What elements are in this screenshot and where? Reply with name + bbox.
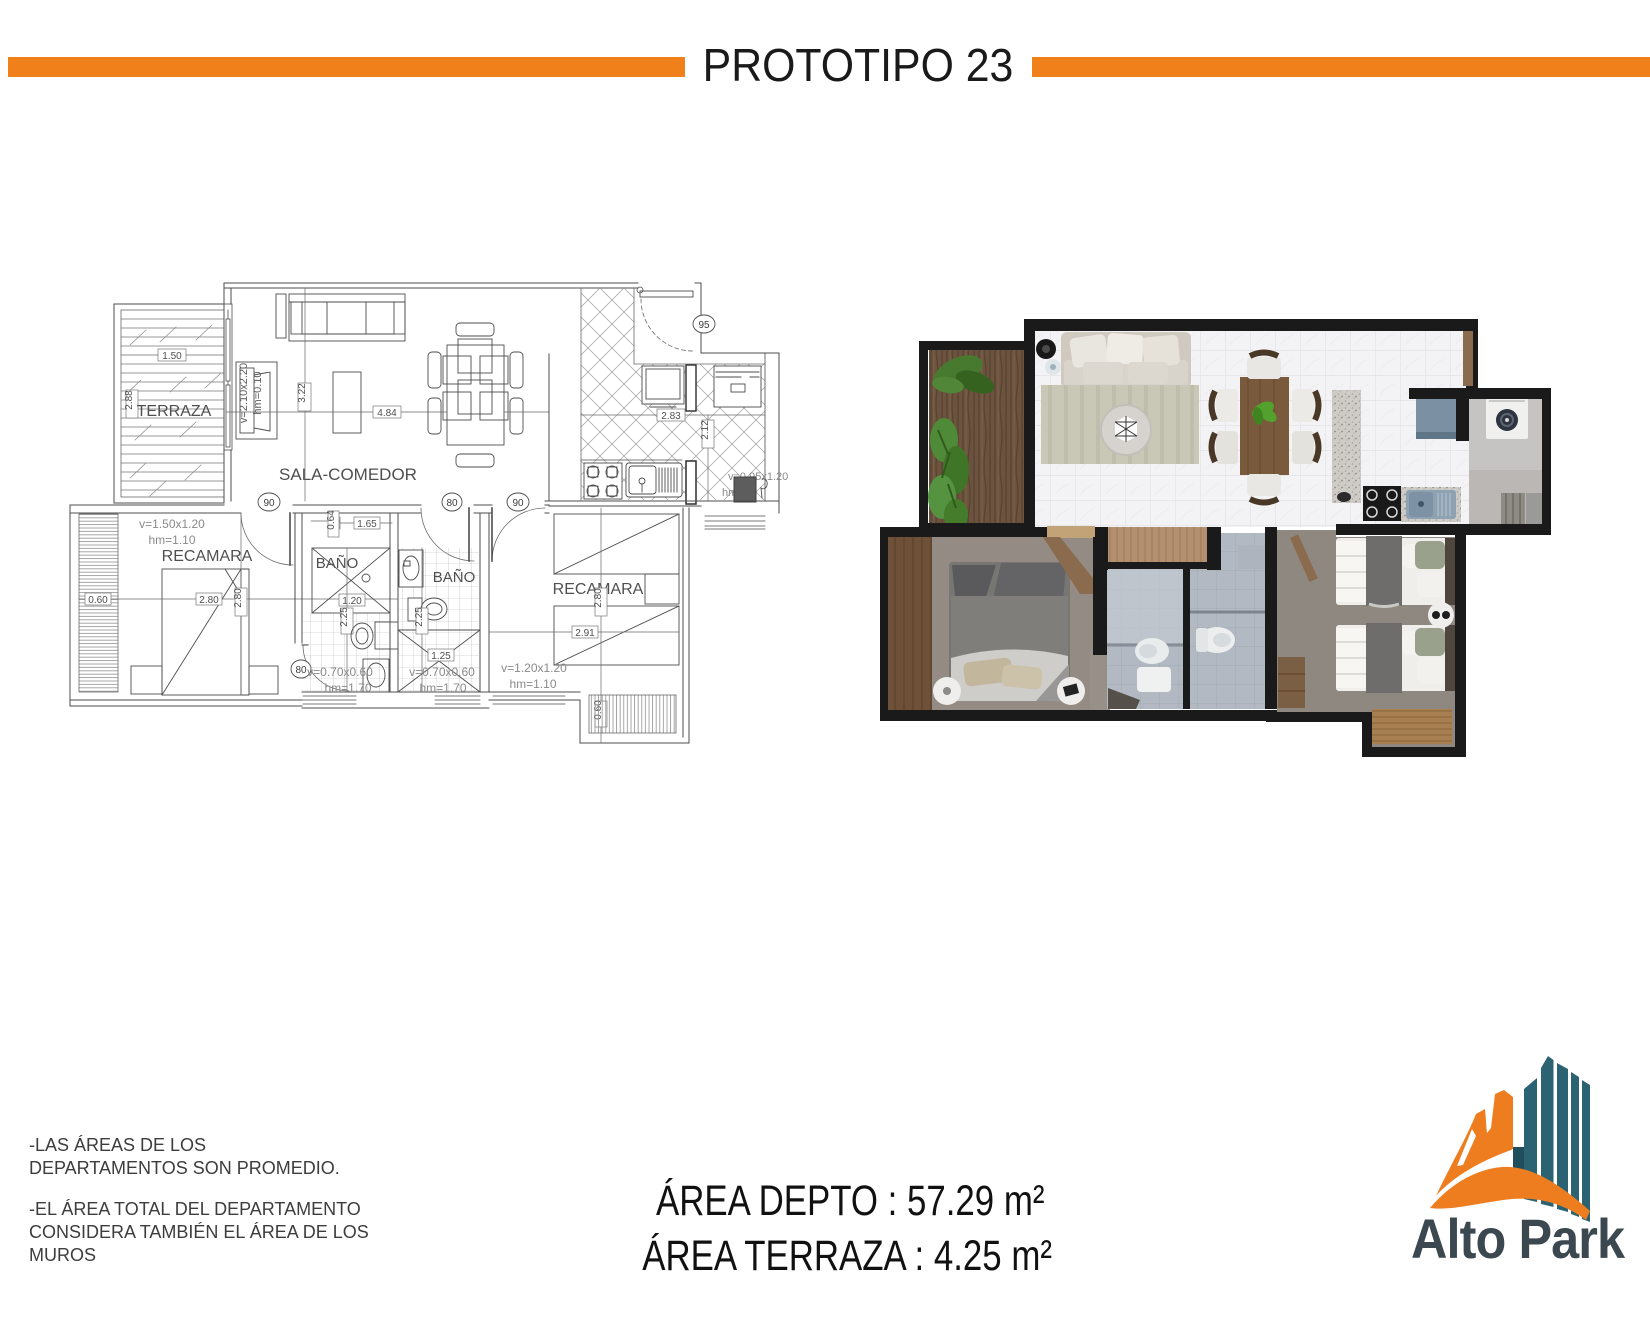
svg-text:2.83: 2.83: [661, 411, 681, 422]
svg-text:v=0.70x0.60: v=0.70x0.60: [307, 665, 373, 679]
svg-text:v=1.20x1.20: v=1.20x1.20: [501, 661, 567, 675]
svg-text:BAÑO: BAÑO: [433, 569, 476, 586]
svg-text:v=1.50x1.20: v=1.50x1.20: [139, 517, 205, 531]
svg-text:SALA-COMEDOR: SALA-COMEDOR: [279, 465, 417, 484]
svg-text:hm=1.10: hm=1.10: [148, 533, 195, 547]
svg-text:2.25: 2.25: [414, 607, 425, 627]
svg-text:hm=1.70: hm=1.70: [324, 681, 371, 695]
svg-text:2.80: 2.80: [199, 595, 219, 606]
svg-text:2.12: 2.12: [700, 420, 711, 440]
svg-text:v=0.70x0.60: v=0.70x0.60: [409, 665, 475, 679]
svg-text:BAÑO: BAÑO: [316, 555, 359, 572]
svg-text:2.80: 2.80: [593, 588, 604, 608]
svg-text:0.64: 0.64: [326, 510, 337, 530]
svg-text:hm=1.10: hm=1.10: [509, 677, 556, 691]
svg-text:2.88: 2.88: [124, 390, 135, 410]
svg-text:1.25: 1.25: [431, 651, 451, 662]
svg-text:hm=1.70: hm=1.70: [419, 681, 466, 695]
svg-text:2.80: 2.80: [233, 588, 244, 608]
svg-text:1.65: 1.65: [357, 519, 377, 530]
svg-text:90: 90: [512, 498, 524, 509]
svg-text:80: 80: [295, 665, 307, 676]
svg-text:90: 90: [263, 498, 275, 509]
svg-text:80: 80: [446, 498, 458, 509]
svg-text:v=2.10x2.20: v=2.10x2.20: [238, 363, 250, 423]
svg-text:95: 95: [698, 320, 710, 331]
svg-text:0.60: 0.60: [88, 595, 108, 606]
svg-text:hm=0.10: hm=0.10: [252, 371, 264, 414]
svg-text:1.20: 1.20: [342, 596, 362, 607]
svg-text:RECAMARA: RECAMARA: [162, 548, 253, 565]
svg-text:TERRAZA: TERRAZA: [137, 403, 212, 420]
svg-text:3.22: 3.22: [297, 383, 308, 403]
svg-text:1.50: 1.50: [162, 351, 182, 362]
svg-text:Alto Park: Alto Park: [1411, 1209, 1625, 1271]
svg-text:2.91: 2.91: [575, 628, 595, 639]
svg-text:2.25: 2.25: [339, 607, 350, 627]
svg-text:4.84: 4.84: [377, 408, 397, 419]
